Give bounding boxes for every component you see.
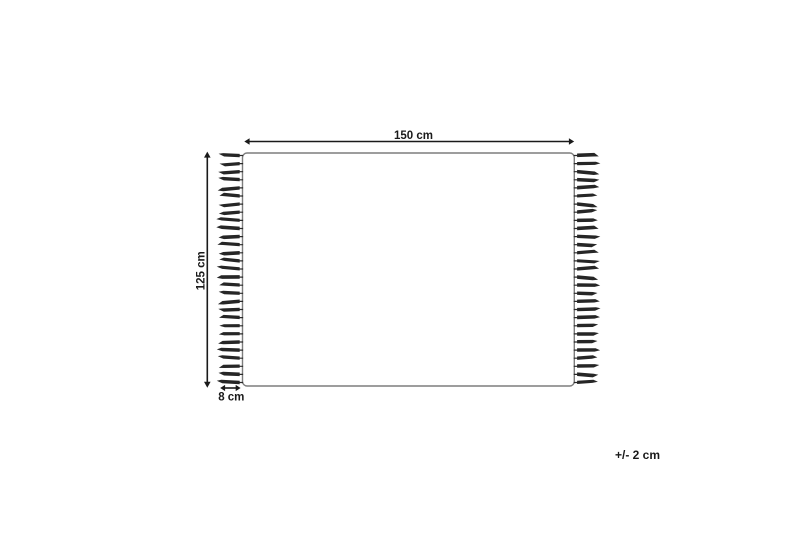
svg-text:8 cm: 8 cm xyxy=(218,392,244,404)
svg-text:125 cm: 125 cm xyxy=(196,251,208,290)
svg-text:+/- 2 cm: +/- 2 cm xyxy=(615,448,660,462)
svg-text:150 cm: 150 cm xyxy=(394,130,433,142)
